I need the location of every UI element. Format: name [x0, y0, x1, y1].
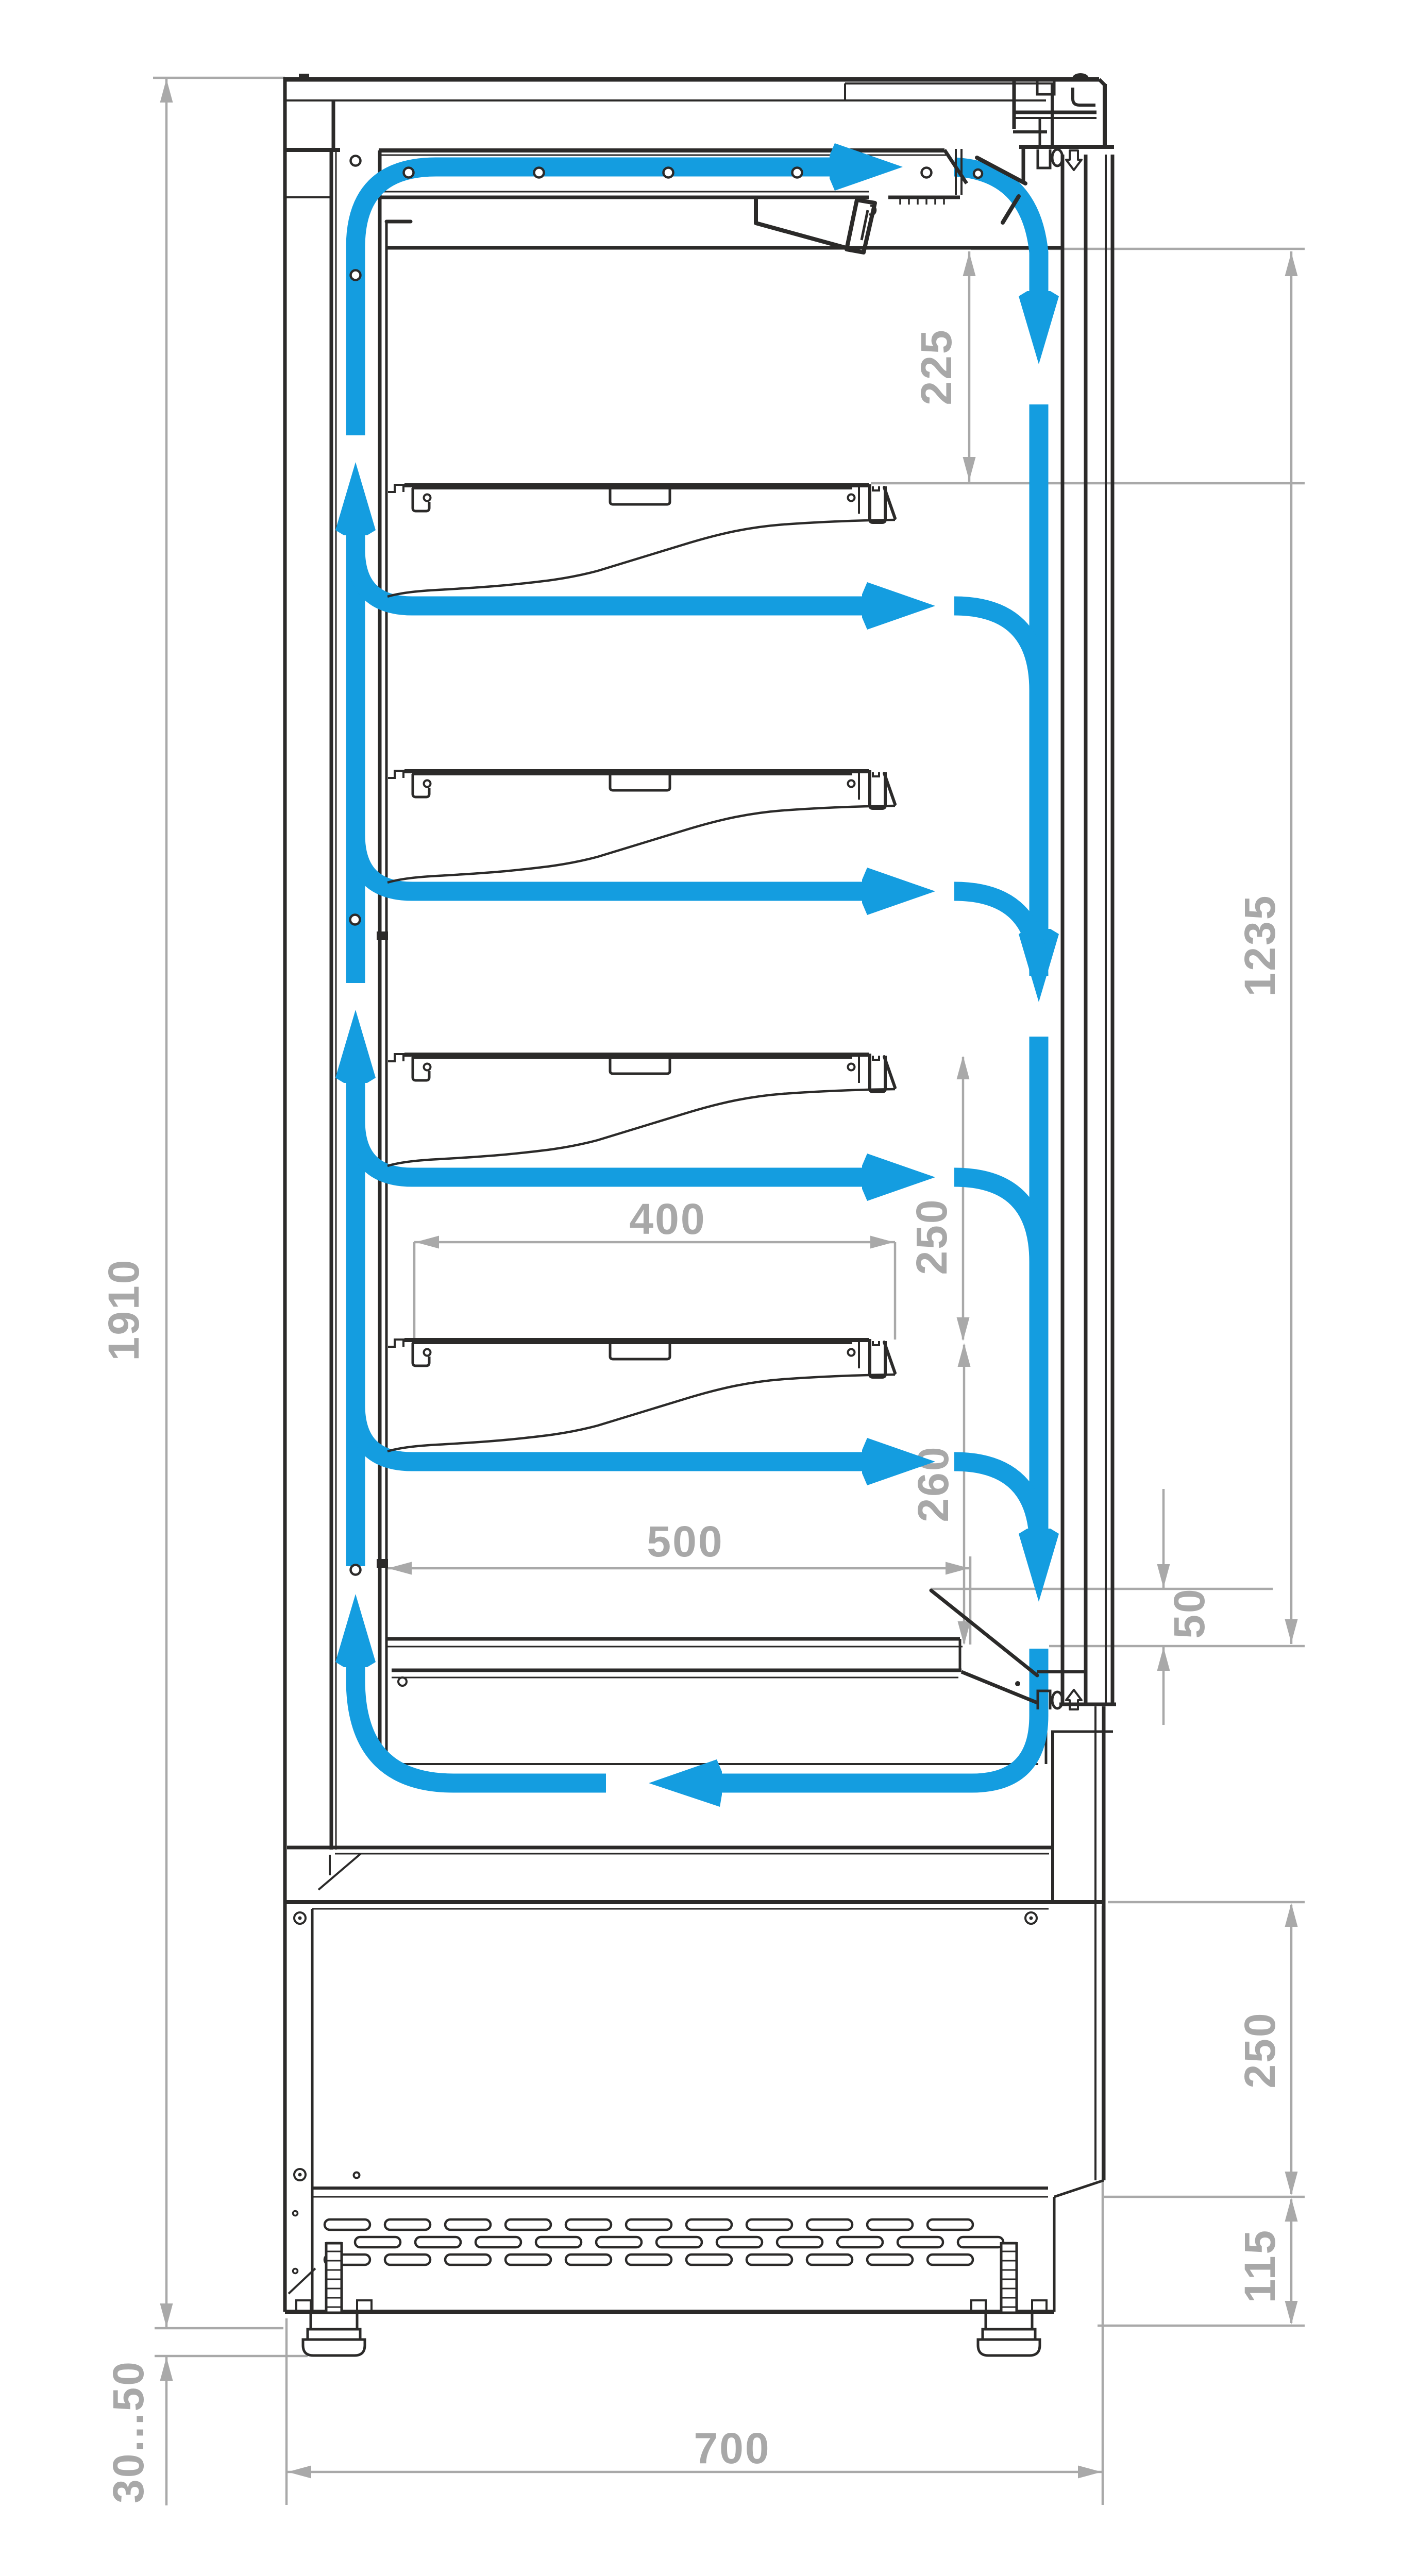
svg-text:400: 400 — [629, 1195, 706, 1243]
svg-text:250: 250 — [907, 1198, 956, 1275]
svg-text:50: 50 — [1165, 1587, 1213, 1638]
svg-text:30...50: 30...50 — [104, 2360, 153, 2503]
svg-text:225: 225 — [912, 328, 960, 405]
svg-text:700: 700 — [694, 2424, 770, 2472]
svg-text:250: 250 — [1236, 2011, 1284, 2088]
svg-text:1910: 1910 — [99, 1259, 148, 1361]
svg-text:500: 500 — [647, 1517, 723, 1566]
svg-text:1235: 1235 — [1236, 894, 1284, 997]
svg-text:115: 115 — [1236, 2229, 1284, 2303]
